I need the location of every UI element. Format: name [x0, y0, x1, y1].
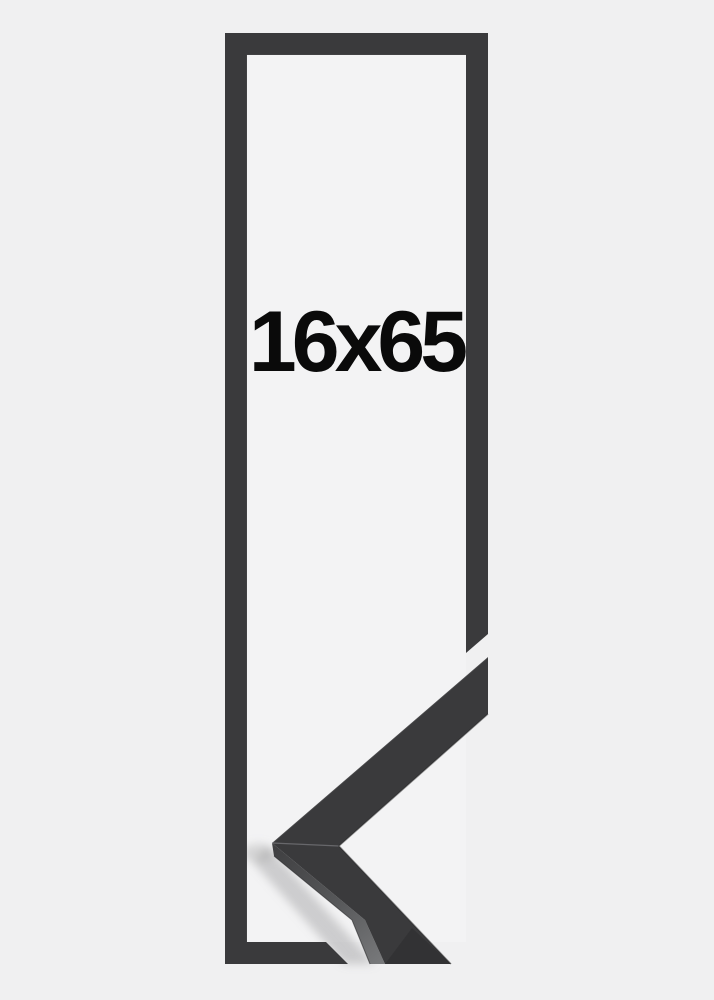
frame-product-graphic	[0, 0, 714, 1000]
size-label: 16x65	[249, 299, 463, 385]
frame-right-border	[466, 33, 488, 653]
product-image: 16x65	[0, 0, 714, 1000]
frame-top-border	[225, 33, 488, 55]
frame-left-border	[225, 33, 247, 964]
